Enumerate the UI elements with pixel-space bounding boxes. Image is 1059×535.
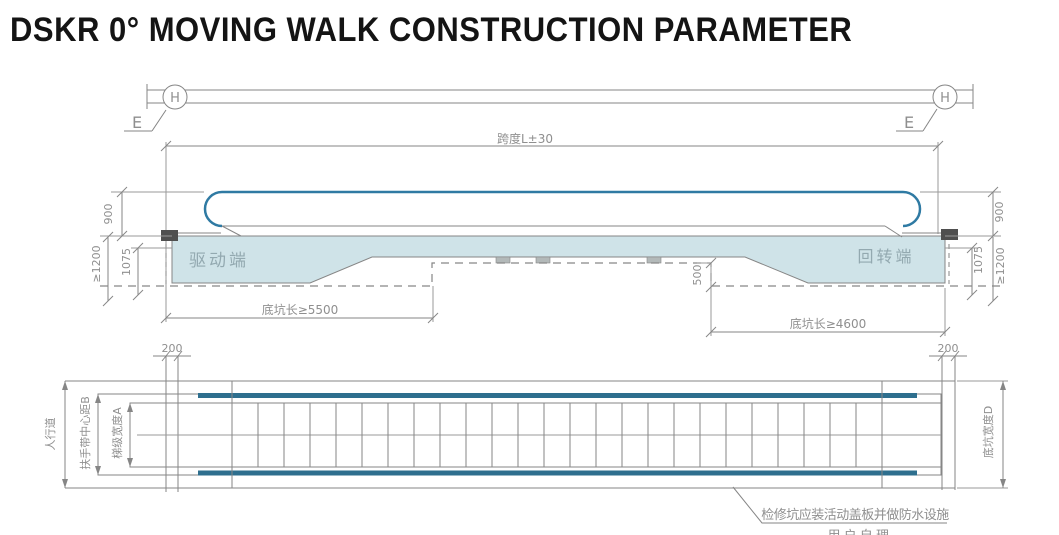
section-view: H H E E 跨度L±30: [90, 84, 1007, 337]
handrail-belt-bottom: [198, 471, 917, 476]
support-block: [536, 257, 550, 263]
handrail-belt-top: [198, 393, 917, 398]
truss-body: [172, 236, 945, 283]
grid-bubble-left-label: H: [170, 91, 180, 106]
pit-depth-right: ≥1200: [994, 247, 1007, 284]
handrail-center-label: 扶手带中心距B: [78, 396, 92, 470]
walkway-label: 人行道: [43, 418, 57, 451]
drive-end-label: 驱动端: [189, 251, 249, 271]
section-cut-line: H H E E: [124, 84, 973, 132]
inner-depth-right: 1075: [972, 246, 985, 274]
elev-mark-leader-right: [923, 109, 937, 131]
elev-mark-right: E: [904, 113, 914, 132]
handrail-height-right: 900: [993, 202, 1006, 223]
elev-mark-leader-left: [152, 110, 166, 131]
step-depth-label: 500: [691, 265, 704, 286]
pit-width-label: 底坑宽度D: [981, 406, 995, 458]
elev-mark-left: E: [132, 113, 142, 132]
offset-dim-right: 200: [929, 342, 967, 361]
newel-skirt-right: [885, 226, 902, 237]
inner-depth-left: 1075: [120, 248, 133, 276]
anchor-block-right: [941, 229, 958, 240]
inspection-note: 检修坑应装活动盖板并做防水设施 用 户 自 理: [733, 487, 949, 535]
handrail-height-left: 900: [102, 204, 115, 225]
slab-edge-left: [166, 356, 178, 492]
offset-right-label: 200: [938, 342, 959, 355]
grid-bubble-right-label: H: [940, 91, 950, 106]
pit-length-return-label: 底坑长≥4600: [790, 316, 867, 331]
offset-left-label: 200: [162, 342, 183, 355]
newel-skirt-left: [222, 226, 241, 236]
pit-length-drive-label: 底坑长≥5500: [262, 302, 339, 317]
slab-edge-right: [942, 356, 955, 490]
plan-left-dims: 人行道 扶手带中心距B 梯级宽度A: [43, 381, 133, 488]
pit-depth-left: ≥1200: [90, 245, 103, 282]
offset-dim-left: 200: [153, 342, 191, 361]
return-end-label: 回转端: [857, 247, 914, 266]
note-line2: 用 户 自 理: [828, 528, 889, 535]
plan-view: 200 200 人行道 扶手带中心距B 梯级宽: [43, 342, 1008, 535]
drawing-canvas: H H E E 跨度L±30: [0, 0, 1059, 535]
handrail-band: [205, 192, 920, 226]
pit-width-dimension: 底坑宽度D: [957, 381, 1008, 488]
support-block: [496, 257, 510, 263]
handrail: [205, 192, 920, 237]
note-line1: 检修坑应装活动盖板并做防水设施: [761, 507, 949, 523]
step-width-label: 梯级宽度A: [110, 407, 124, 459]
span-dim-label: 跨度L±30: [497, 131, 553, 146]
support-block: [647, 257, 661, 263]
